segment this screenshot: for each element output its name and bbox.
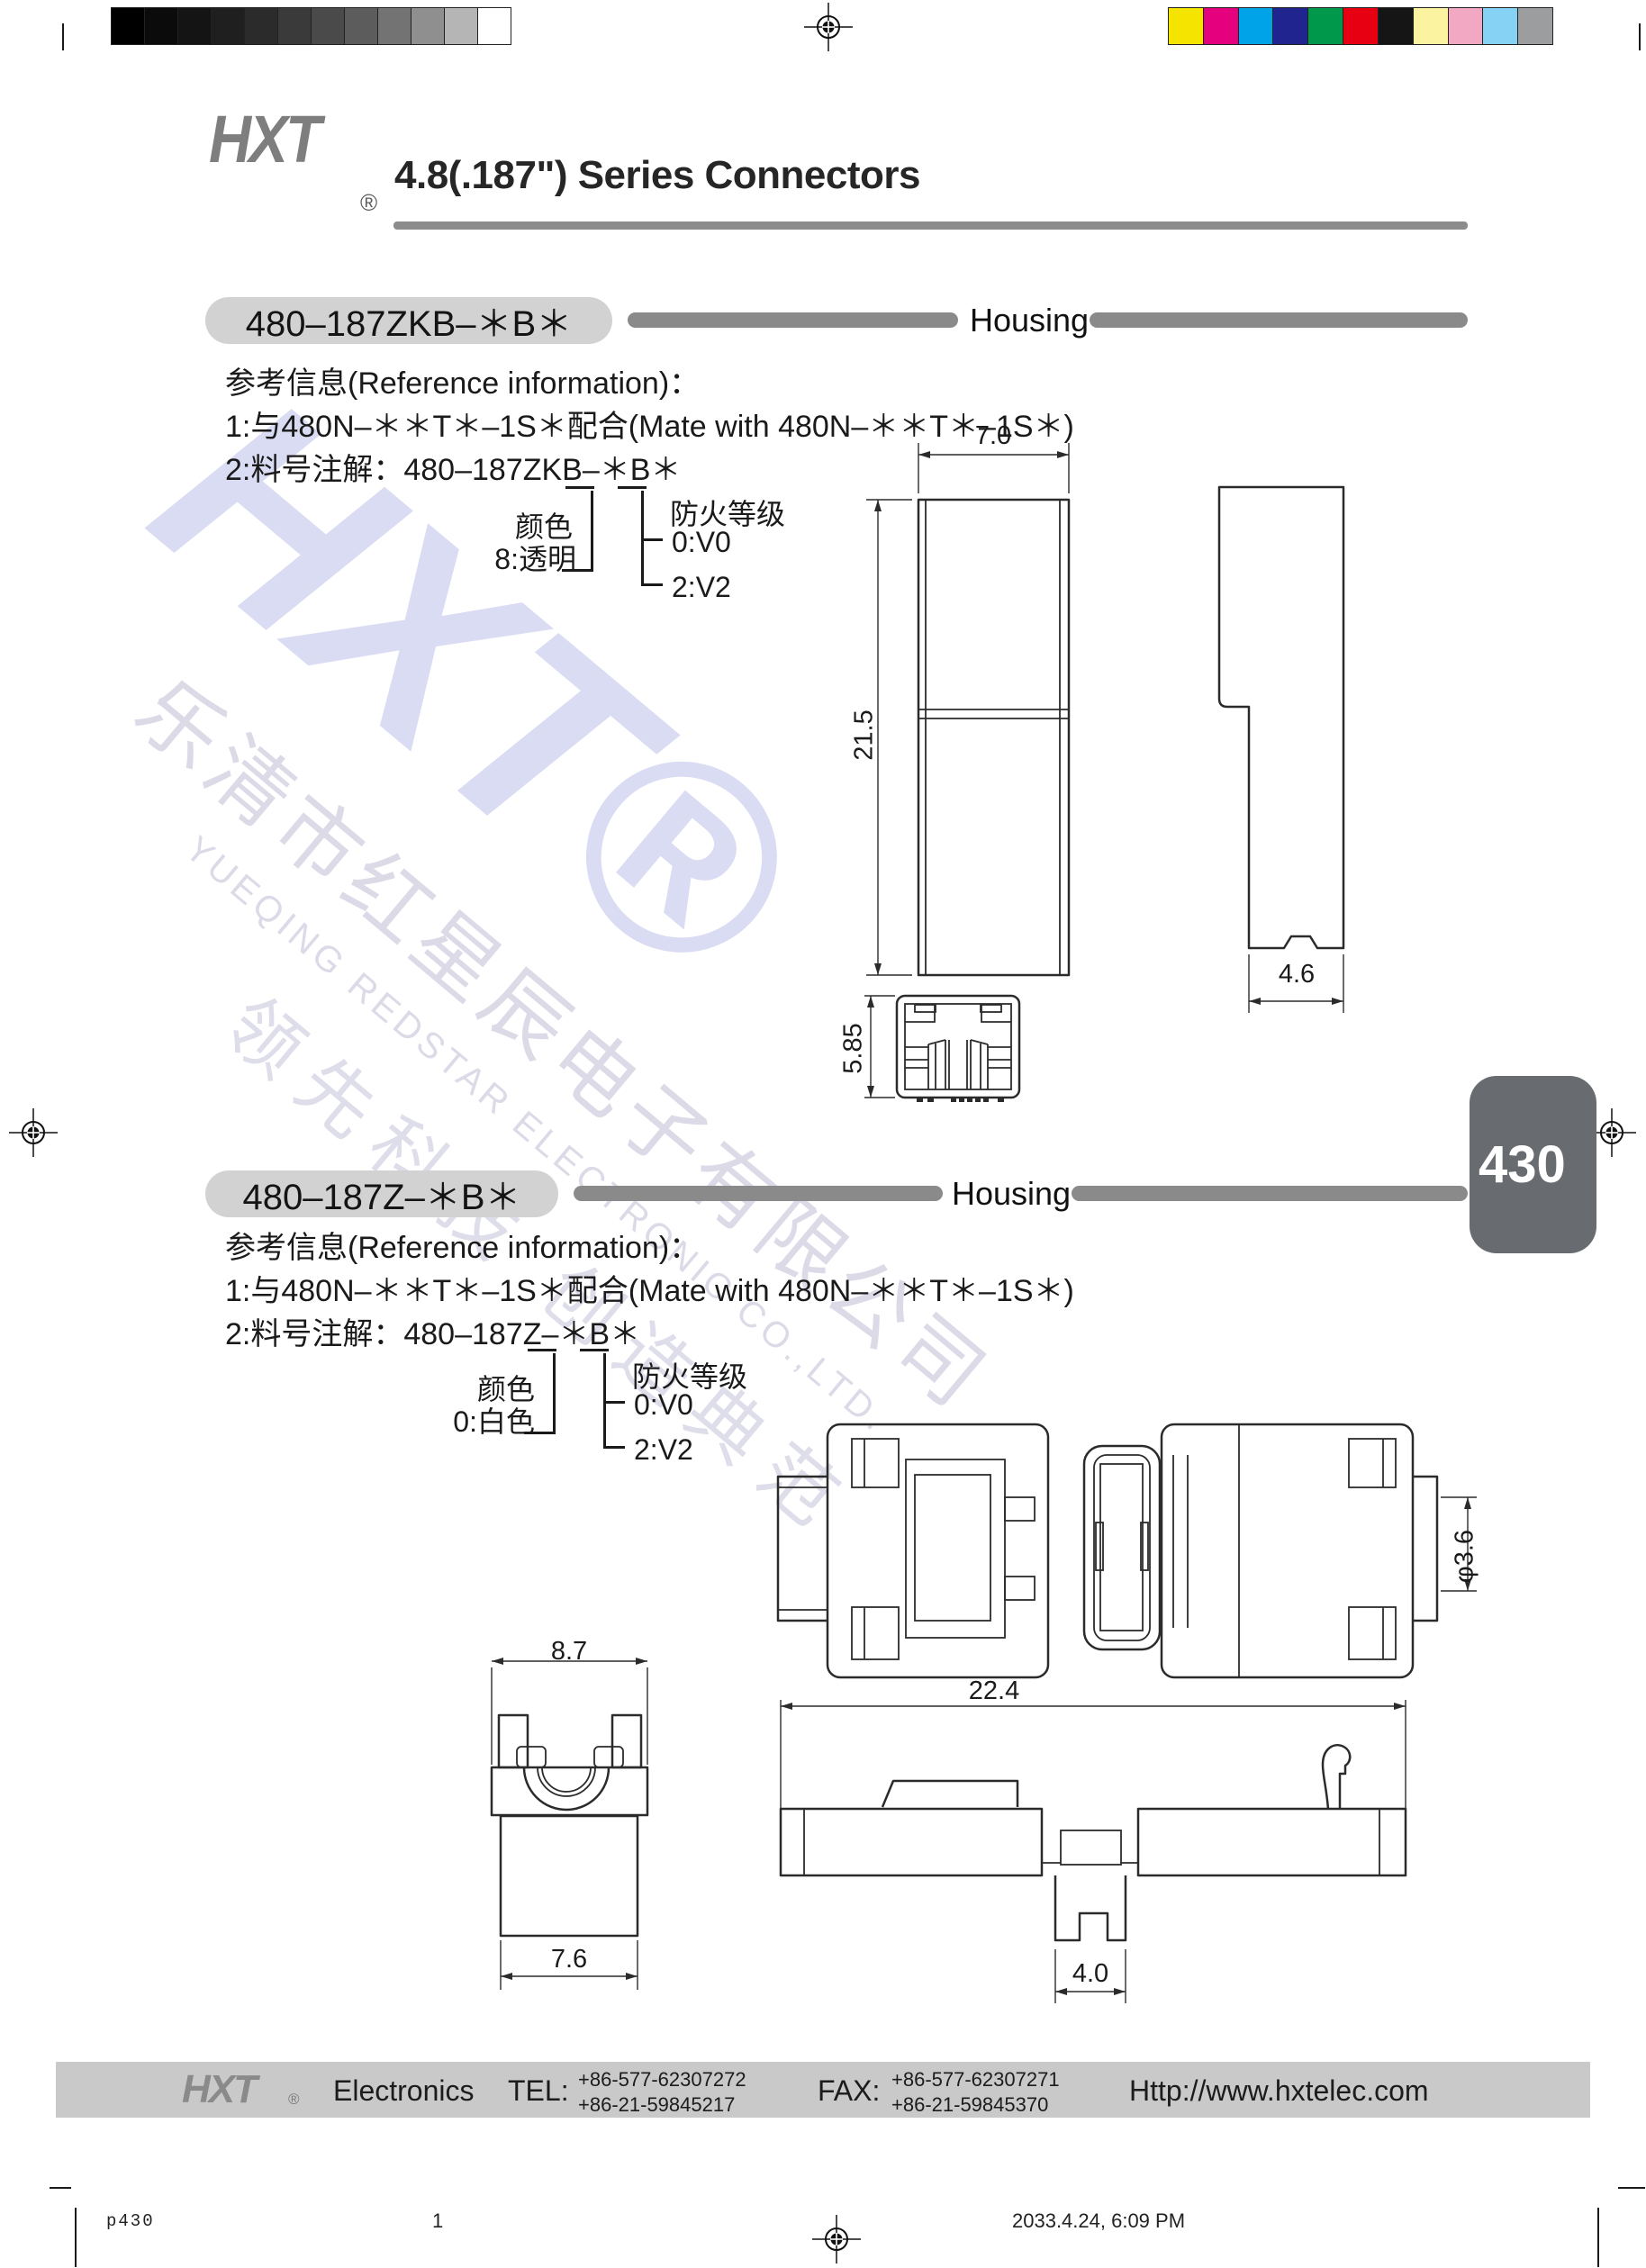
datasheet-page: HXT® 乐清市红星辰电子有限公司 YUEQING REDSTAR ELECTR… xyxy=(0,0,1646,2268)
reference-line: 2:料号注解：480–187ZKB–＊B＊ xyxy=(225,445,681,489)
page-number: 430 xyxy=(1479,1134,1566,1195)
part-number: 480–187ZKB–＊B＊ xyxy=(246,294,572,347)
calibration-swatch xyxy=(1273,8,1307,44)
section-bar xyxy=(1072,1186,1468,1201)
legend-color-value: 8:透明 xyxy=(432,537,576,578)
section-bar xyxy=(574,1186,943,1201)
footer-registered-mark: ® xyxy=(288,2091,300,2109)
section-label: Housing xyxy=(970,302,1089,339)
registration-mark-left xyxy=(8,1107,59,1158)
reference-heading: 参考信息(Reference information)： xyxy=(225,1223,700,1267)
calibration-swatch xyxy=(445,8,477,44)
calibration-swatch xyxy=(1204,8,1238,44)
crop-mark xyxy=(1639,23,1641,50)
calibration-swatch xyxy=(411,8,444,44)
calibration-swatch xyxy=(478,8,511,44)
footer-tel1: +86-577-62307272 xyxy=(578,2067,746,2092)
legend-line xyxy=(553,1353,556,1434)
print-file-name: p430 xyxy=(106,2211,155,2231)
crop-mark xyxy=(1597,2208,1599,2267)
legend-line xyxy=(641,538,663,541)
side-view-drawing xyxy=(1198,423,1387,1035)
footer-fax-label: FAX: xyxy=(818,2074,880,2108)
legend-line xyxy=(603,1446,625,1449)
header-rule xyxy=(393,221,1468,230)
dim-top-width: 8.7 xyxy=(524,1637,614,1667)
calibration-swatch xyxy=(1414,8,1448,44)
calibration-swatch xyxy=(178,8,211,44)
dim-base-width: 7.6 xyxy=(524,1945,614,1974)
calibration-swatch xyxy=(1169,8,1203,44)
legend-fire-v2: 2:V2 xyxy=(634,1433,693,1467)
legend-fire-v0: 0:V0 xyxy=(634,1388,693,1422)
calibration-swatch xyxy=(1518,8,1552,44)
brand-logo: HXT xyxy=(209,101,319,177)
crop-mark xyxy=(1618,2187,1645,2189)
section-label: Housing xyxy=(952,1175,1071,1213)
registration-mark-bottom xyxy=(811,2214,862,2264)
footer-fax1: +86-577-62307271 xyxy=(891,2067,1060,2092)
registered-mark: ® xyxy=(360,189,377,217)
calibration-swatch xyxy=(212,8,244,44)
grayscale-calibration-bar xyxy=(111,7,511,45)
calibration-swatch xyxy=(1379,8,1413,44)
footer-website: Http://www.hxtelec.com xyxy=(1129,2074,1429,2108)
calibration-swatch xyxy=(278,8,311,44)
calibration-swatch xyxy=(312,8,344,44)
crop-mark xyxy=(62,23,64,50)
legend-underline xyxy=(618,486,647,489)
footer-brand: Electronics xyxy=(333,2074,475,2108)
legend-line xyxy=(591,491,593,572)
crop-mark xyxy=(75,2208,77,2267)
legend-fire-v0: 0:V0 xyxy=(672,526,731,559)
dim-front-width: 7.0 xyxy=(948,421,1038,451)
calibration-swatch xyxy=(1239,8,1273,44)
page-title: 4.8(.187") Series Connectors xyxy=(394,153,920,198)
dim-stem-width: 4.0 xyxy=(1045,1959,1135,1989)
top-assembly-drawing xyxy=(765,1405,1486,1702)
footer-fax-numbers: +86-577-62307271 +86-21-59845370 xyxy=(891,2067,1060,2117)
legend-line xyxy=(603,1401,625,1404)
part-number-badge: 480–187ZKB–＊B＊ xyxy=(205,297,612,344)
calibration-swatch xyxy=(112,8,144,44)
legend-underline xyxy=(528,1349,556,1351)
calibration-swatch xyxy=(1308,8,1343,44)
dim-overall-length: 22.4 xyxy=(949,1676,1039,1706)
calibration-swatch xyxy=(145,8,177,44)
page-number-tab: 430 xyxy=(1470,1076,1596,1253)
reference-heading: 参考信息(Reference information)： xyxy=(225,358,700,402)
footer-tel-numbers: +86-577-62307272 +86-21-59845217 xyxy=(578,2067,746,2117)
footer-tel-label: TEL: xyxy=(508,2074,569,2108)
registration-mark-top xyxy=(803,2,854,52)
calibration-swatch xyxy=(345,8,377,44)
section-bar xyxy=(628,312,958,328)
legend-underline xyxy=(580,1349,609,1351)
reference-line: 2:料号注解：480–187Z–＊B＊ xyxy=(225,1309,640,1353)
section-bar xyxy=(1090,312,1468,328)
calibration-swatch xyxy=(378,8,411,44)
color-calibration-bar xyxy=(1168,7,1553,45)
legend-line xyxy=(641,583,663,586)
reference-line: 1:与480N–＊＊T＊–1S＊配合(Mate with 480N–＊＊T＊–1… xyxy=(225,1266,1074,1310)
footer-tel2: +86-21-59845217 xyxy=(578,2092,746,2118)
dim-side-bottom: 4.6 xyxy=(1252,960,1342,989)
crop-mark xyxy=(50,2187,71,2189)
print-datetime: 2033.4.24, 6:09 PM xyxy=(1012,2209,1185,2233)
print-page-number: 1 xyxy=(432,2209,443,2233)
part-number-badge: 480–187Z–＊B＊ xyxy=(205,1170,558,1217)
part-number: 480–187Z–＊B＊ xyxy=(242,1168,520,1220)
legend-fire-v2: 2:V2 xyxy=(672,571,731,604)
calibration-swatch xyxy=(1483,8,1517,44)
calibration-swatch xyxy=(1343,8,1378,44)
footer-fax2: +86-21-59845370 xyxy=(891,2092,1060,2118)
footer-logo: HXT xyxy=(182,2067,256,2112)
footer-bar: HXT ® Electronics TEL: +86-577-62307272 … xyxy=(56,2062,1590,2118)
calibration-swatch xyxy=(245,8,277,44)
legend-underline xyxy=(565,486,594,489)
dim-front-height: 21.5 xyxy=(850,686,880,785)
calibration-swatch xyxy=(1449,8,1483,44)
dim-depth: 5.85 xyxy=(839,999,869,1098)
legend-color-value: 0:白色 xyxy=(391,1399,535,1441)
dim-hole-dia: φ3.6 xyxy=(1451,1503,1480,1611)
